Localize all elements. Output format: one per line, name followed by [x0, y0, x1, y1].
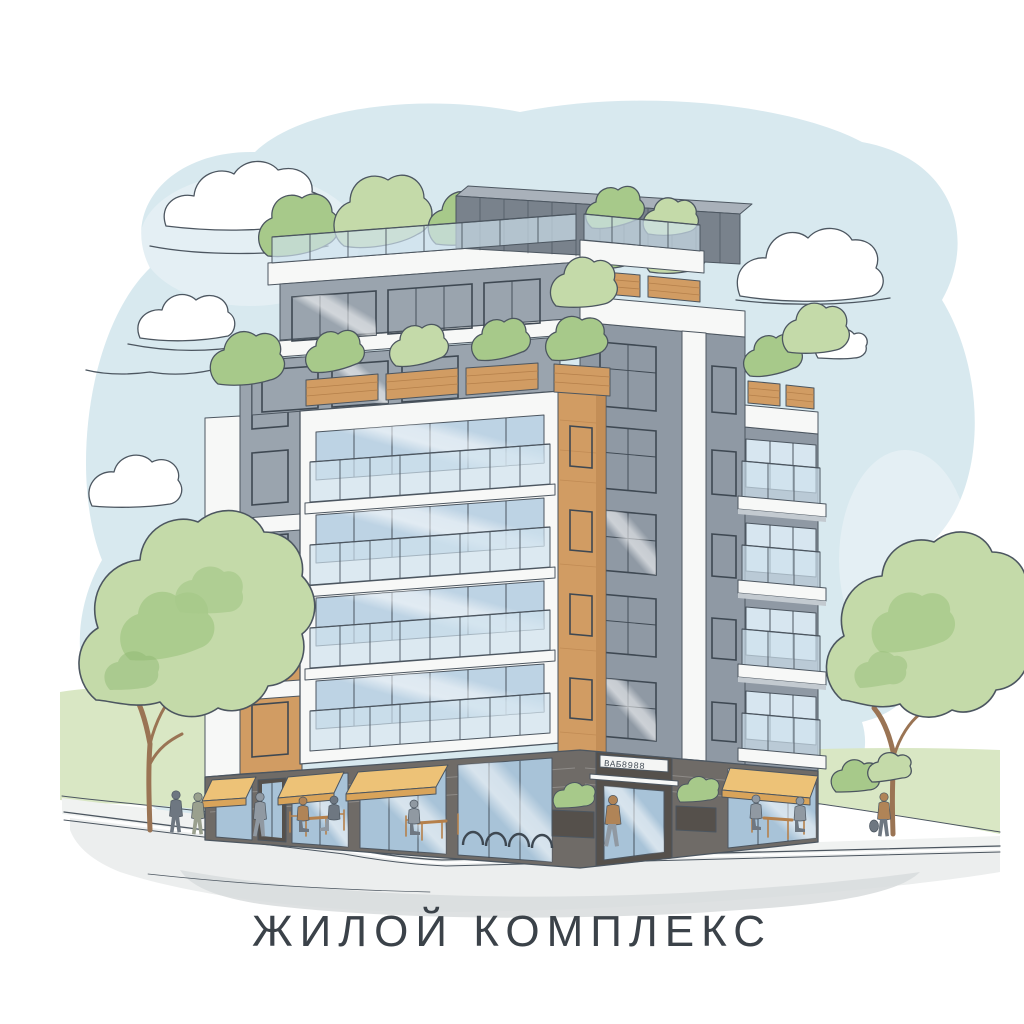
illustration-title: ЖИЛОЙ КОМПЛЕКС [0, 907, 1024, 957]
illustration-canvas: ВАБ8988 [0, 0, 1024, 1024]
building-illustration: ВАБ8988 [0, 0, 1024, 1024]
entrance: ВАБ8988 [590, 752, 678, 866]
center-bay [300, 391, 560, 764]
pilaster [682, 331, 706, 761]
